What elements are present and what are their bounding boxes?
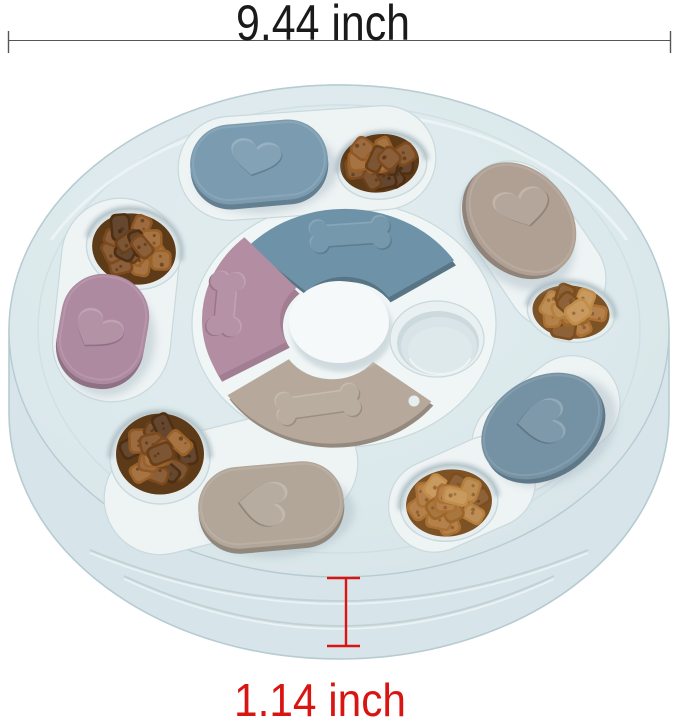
svg-text:1.14 inch: 1.14 inch [234,674,406,719]
svg-text:9.44 inch: 9.44 inch [236,0,410,51]
